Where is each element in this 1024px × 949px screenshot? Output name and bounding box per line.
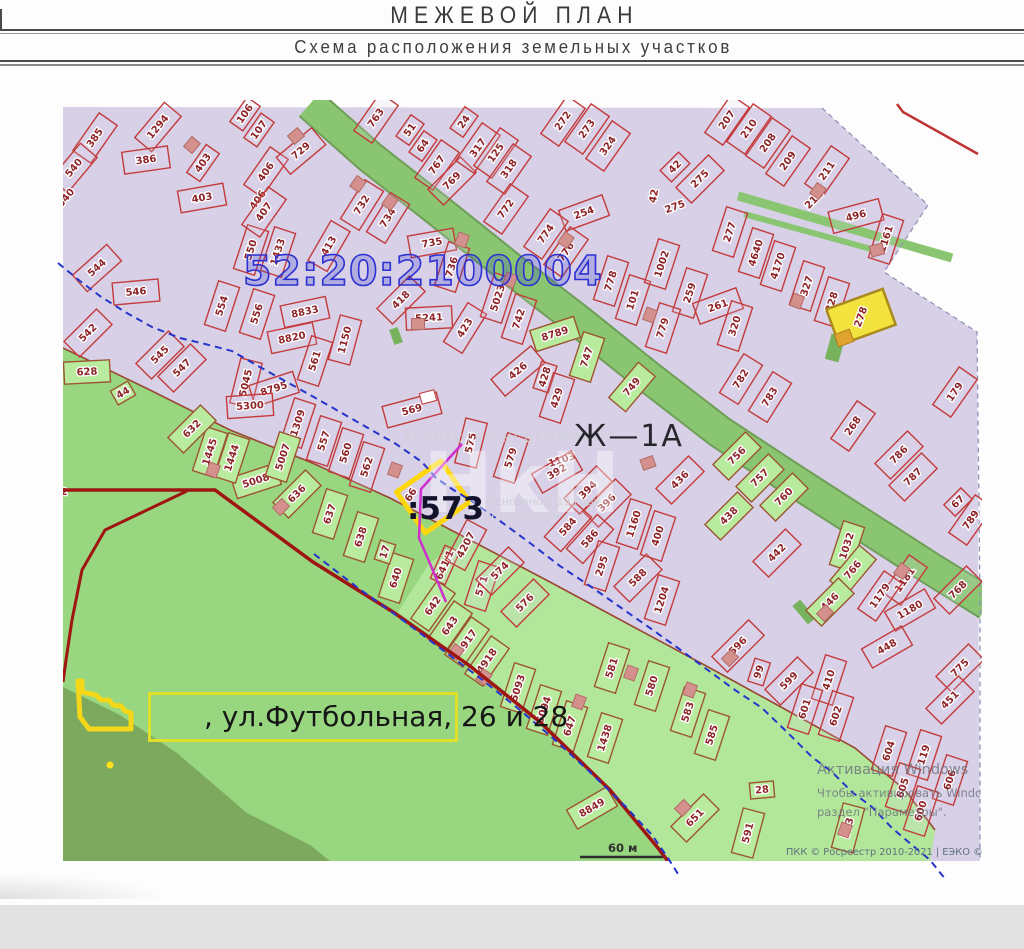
parcel: 28 [749, 781, 774, 799]
highlighted-parcel-number: :573 [407, 491, 484, 527]
activation-overlay-line1: Активация Windows [817, 762, 980, 778]
watermark-tagline: метры метро [483, 509, 559, 522]
cadastral-quarter-number: 52:20:2100004 [243, 247, 603, 295]
page-corner-shadow [0, 857, 250, 899]
building [412, 319, 425, 330]
parcel-number: 546 [125, 286, 147, 299]
parcel: 628 [63, 360, 110, 384]
scale-bar-label: 60 м [608, 841, 637, 855]
zone-label: Ж—1А [574, 419, 684, 454]
watermark-founded: основано в 19 году [489, 495, 600, 508]
activation-overlay-line2: Чтобы активировать Windows, перейдите в [817, 786, 980, 800]
parcel-number: 628 [76, 366, 97, 378]
map-copyright: ПКК © Росреестр 2010-2021 | ЕЭКО © [786, 847, 983, 858]
viewer-bottom-strip [0, 905, 1024, 949]
yellow-dot [107, 762, 114, 769]
parcel: 546 [112, 279, 160, 305]
address-callout-text: , ул.Футбольная, 26 и 28 [204, 700, 568, 733]
parcel-number: 28 [755, 784, 770, 796]
red-line-segment [897, 104, 978, 154]
activation-overlay-line3: раздел "Параметры". [817, 805, 987, 819]
parcel: 5300 [226, 393, 273, 418]
parcel-number: 5300 [236, 400, 265, 413]
document-page: МЕЖЕВОЙ ПЛАН Схема расположения земельны… [0, 0, 1024, 949]
